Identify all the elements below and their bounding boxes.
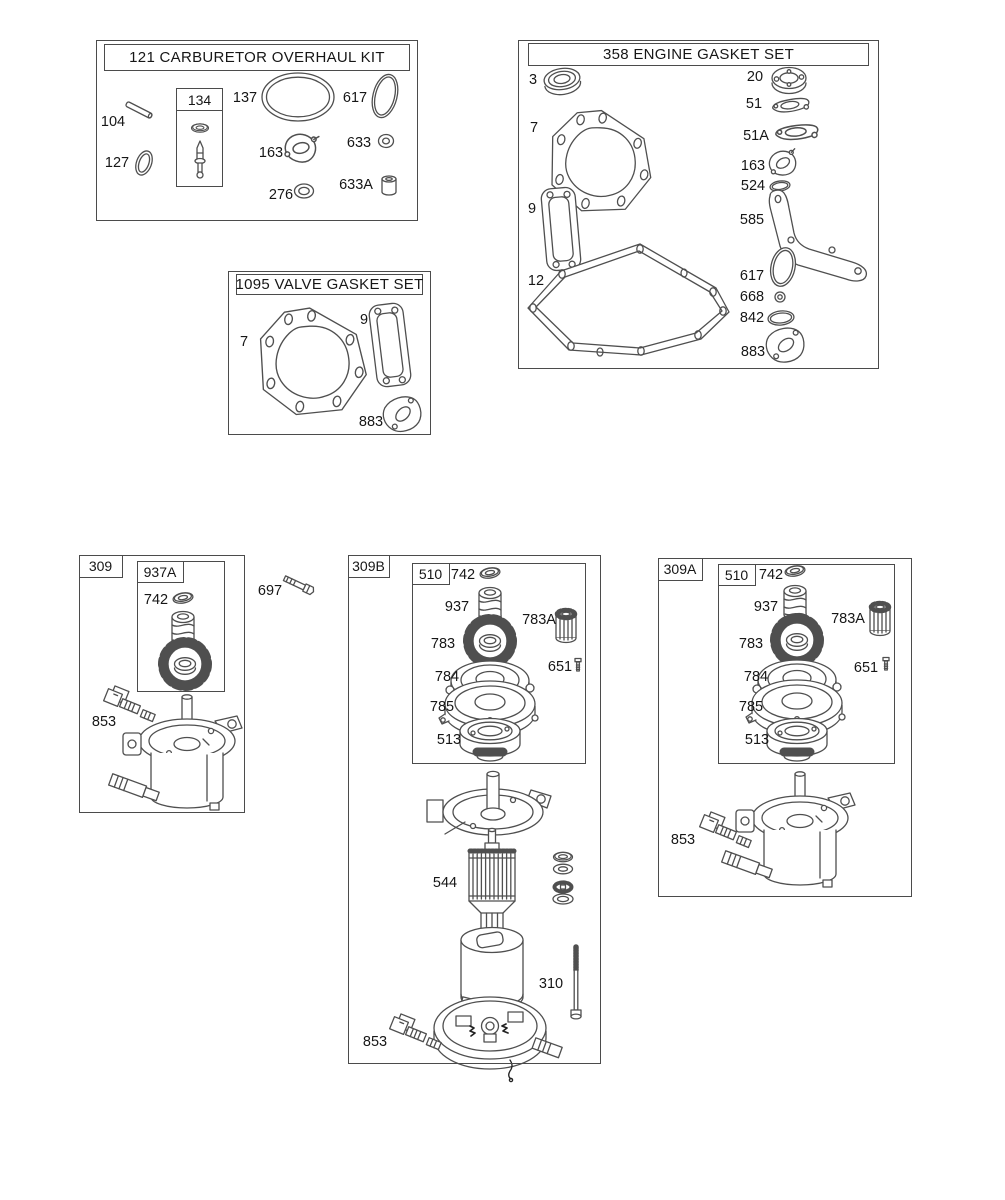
section-title: 1095 VALVE GASKET SET — [235, 276, 423, 293]
part-label-310: 310 — [539, 976, 563, 992]
kit-label: 937A — [144, 564, 177, 580]
part-label-784: 784 — [744, 669, 768, 685]
starter-309b-label-box: 309B — [348, 555, 390, 578]
part-label-784: 784 — [435, 669, 459, 685]
part-label-9: 9 — [360, 312, 368, 328]
group-label: 309 — [89, 558, 112, 574]
part-label-127: 127 — [105, 155, 129, 171]
part-label-783: 783 — [431, 636, 455, 652]
part-label-883: 883 — [741, 344, 765, 360]
part-label-853: 853 — [363, 1034, 387, 1050]
needle-kit-title: 134 — [177, 89, 222, 111]
part-label-7: 7 — [530, 120, 538, 136]
part-label-20: 20 — [747, 69, 763, 85]
carburetor-kit-title: 121 CARBURETOR OVERHAUL KIT — [104, 44, 410, 71]
part-label-3: 3 — [529, 72, 537, 88]
kit-label: 510 — [725, 567, 748, 583]
group-label: 309B — [352, 558, 385, 574]
part-label-544: 544 — [433, 875, 457, 891]
carburetor-kit-box: 121 CARBURETOR OVERHAUL KIT — [96, 40, 418, 221]
part-label-853: 853 — [671, 832, 695, 848]
part-label-633A: 633A — [339, 177, 373, 193]
drive-kit-937a-label-box: 937A — [137, 561, 184, 583]
part-label-842: 842 — [740, 310, 764, 326]
part-label-785: 785 — [739, 699, 763, 715]
part-label-524: 524 — [741, 178, 765, 194]
bolt-icon — [283, 575, 315, 596]
starter-309-label-box: 309 — [79, 555, 123, 578]
part-label-742: 742 — [144, 592, 168, 608]
part-label-585: 585 — [740, 212, 764, 228]
needle-kit-box: 134 — [176, 88, 223, 187]
part-label-163: 163 — [259, 145, 283, 161]
part-label-783: 783 — [739, 636, 763, 652]
part-label-853: 853 — [92, 714, 116, 730]
kit-label: 510 — [419, 566, 442, 582]
valve-gasket-set-title: 1095 VALVE GASKET SET — [236, 274, 423, 295]
part-label-633: 633 — [347, 135, 371, 151]
part-label-883: 883 — [359, 414, 383, 430]
part-label-513: 513 — [745, 732, 769, 748]
part-label-651: 651 — [548, 659, 572, 675]
group-label: 309A — [664, 561, 697, 577]
part-label-7: 7 — [240, 334, 248, 350]
part-label-651: 651 — [854, 660, 878, 676]
part-label-783A: 783A — [522, 612, 556, 628]
part-label-276: 276 — [269, 187, 293, 203]
part-label-51: 51 — [746, 96, 762, 112]
part-label-51A: 51A — [743, 128, 769, 144]
section-title: 358 ENGINE GASKET SET — [603, 46, 794, 63]
part-label-137: 137 — [233, 90, 257, 106]
drive-kit-510-label-box: 510 — [718, 564, 756, 586]
drive-kit-937a-box: 937A — [137, 561, 225, 692]
drive-kit-510-label-box: 510 — [412, 563, 450, 585]
part-label-513: 513 — [437, 732, 461, 748]
part-label-783A: 783A — [831, 611, 865, 627]
part-label-9: 9 — [528, 201, 536, 217]
part-label-163: 163 — [741, 158, 765, 174]
part-label-617: 617 — [343, 90, 367, 106]
kit-label: 134 — [188, 92, 211, 108]
engine-gasket-set-box: 358 ENGINE GASKET SET — [518, 40, 879, 369]
part-label-617: 617 — [740, 268, 764, 284]
part-label-742: 742 — [451, 567, 475, 583]
part-label-12: 12 — [528, 273, 544, 289]
part-label-785: 785 — [430, 699, 454, 715]
part-label-937: 937 — [445, 599, 469, 615]
starter-309a-label-box: 309A — [658, 558, 703, 581]
part-label-668: 668 — [740, 289, 764, 305]
part-label-697: 697 — [258, 583, 282, 599]
part-label-742: 742 — [759, 567, 783, 583]
valve-gasket-set-box: 1095 VALVE GASKET SET — [228, 271, 431, 435]
section-title: 121 CARBURETOR OVERHAUL KIT — [129, 49, 385, 66]
part-label-104: 104 — [101, 114, 125, 130]
part-label-937: 937 — [754, 599, 778, 615]
parts-diagram-canvas: 121 CARBURETOR OVERHAUL KIT 134 358 ENGI… — [0, 0, 1005, 1200]
engine-gasket-set-title: 358 ENGINE GASKET SET — [528, 43, 869, 66]
